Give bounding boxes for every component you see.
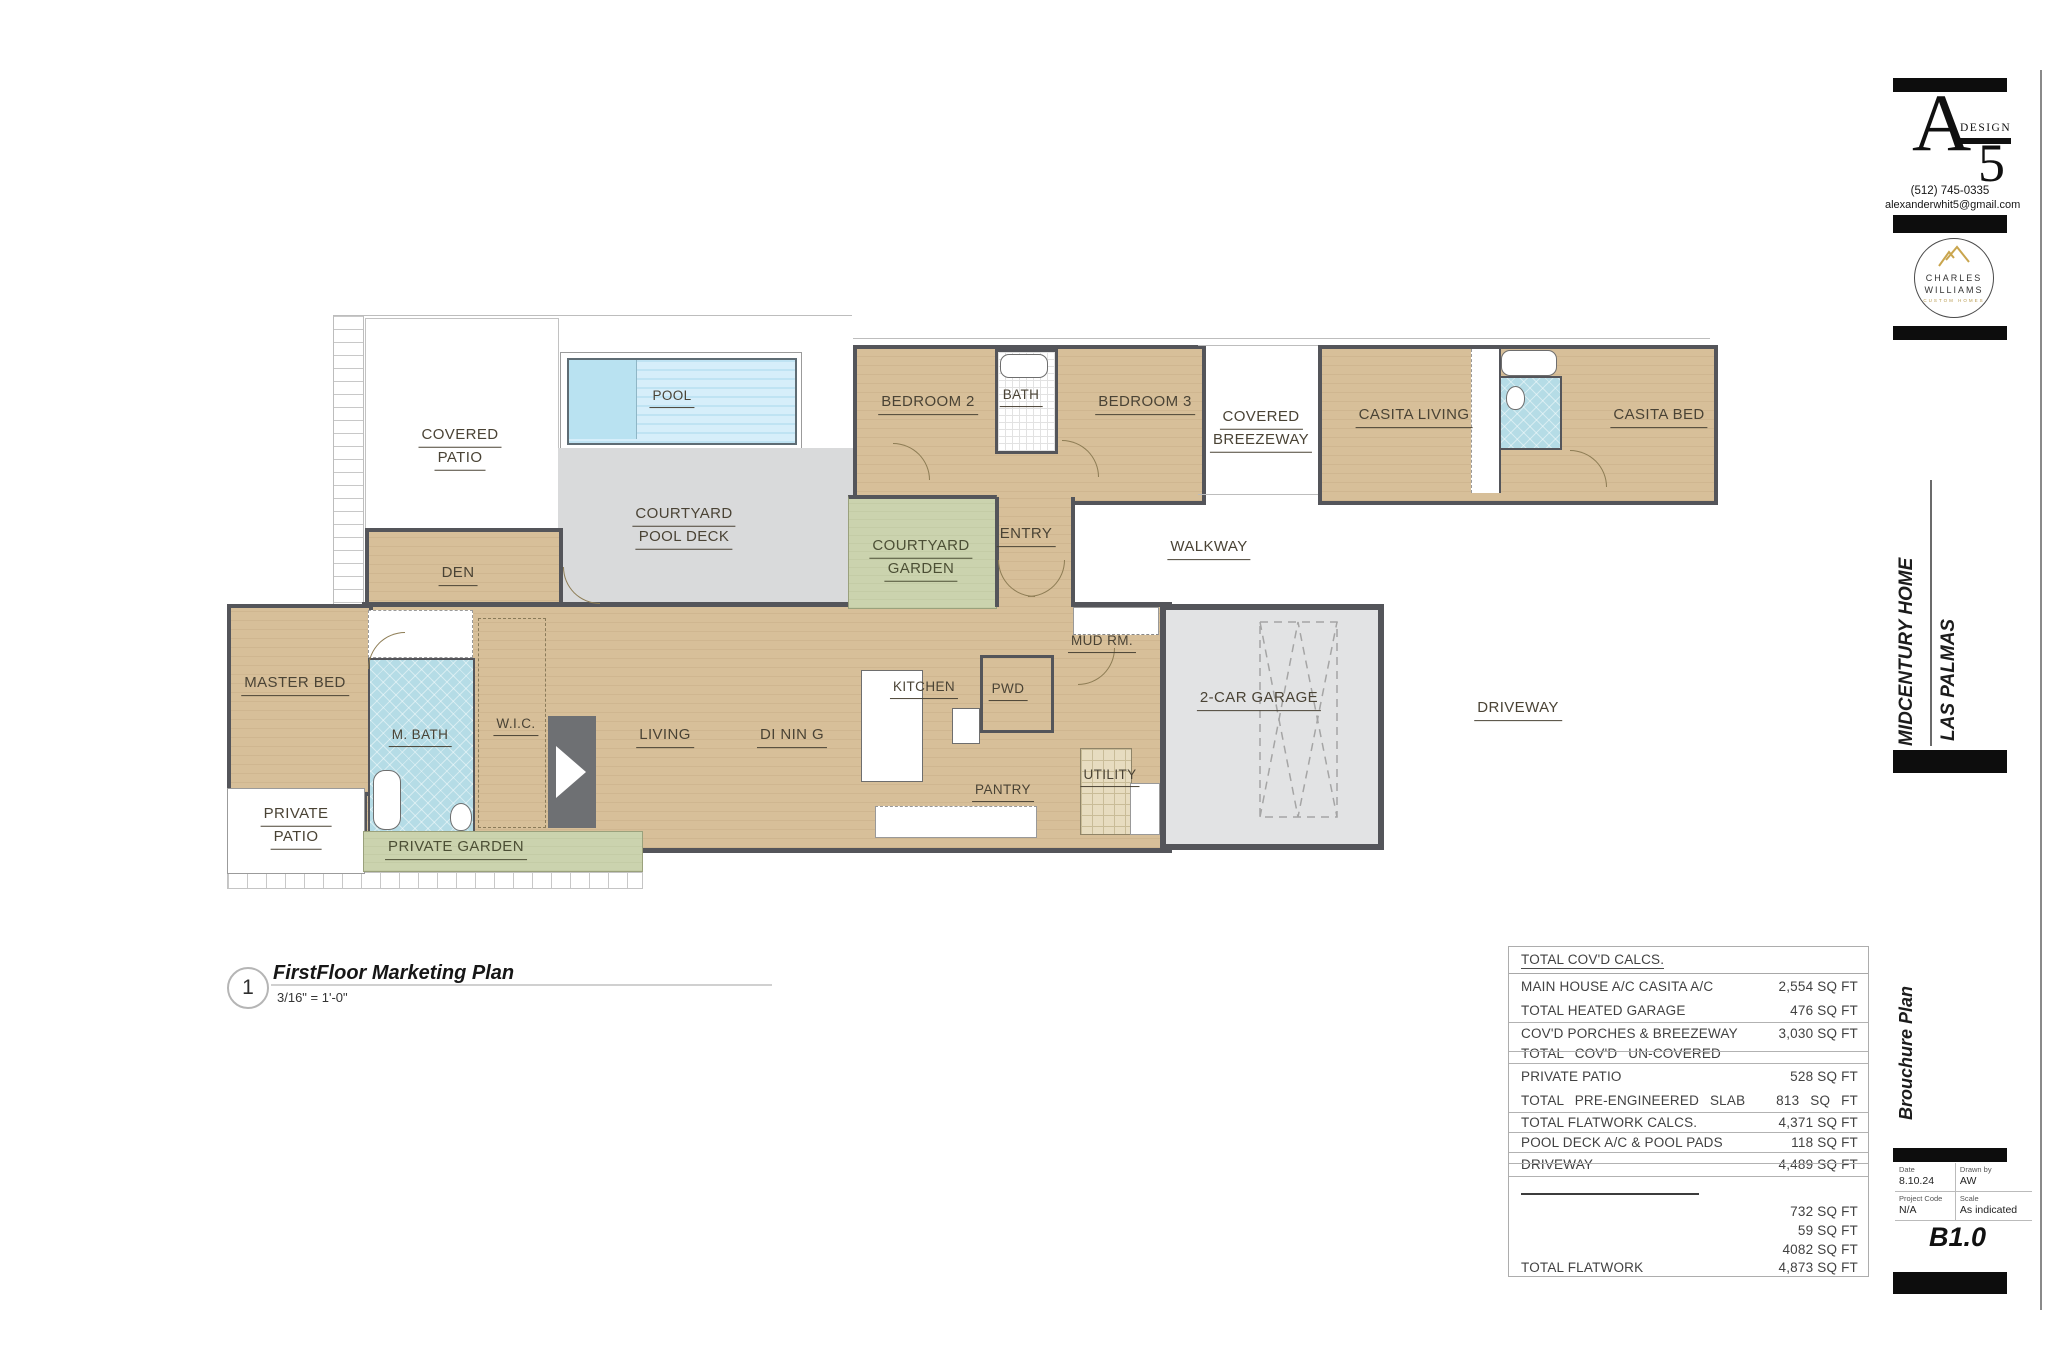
- breezeway-top-line: [1198, 345, 1318, 346]
- range-icon: [952, 708, 980, 744]
- utility-closet: [1130, 783, 1160, 835]
- room-label-pool: POOL: [649, 387, 694, 409]
- utility-floor-tile: [1080, 748, 1132, 835]
- room-label-bedroom3: BEDROOM 3: [1095, 392, 1195, 416]
- coverage-calc-table: TOTAL COV'D CALCS. MAIN HOUSE A/C CASITA…: [1508, 946, 1869, 1277]
- room-label-courtyard-garden: COURTYARDGARDEN: [869, 536, 972, 583]
- room-label-den: DEN: [439, 563, 478, 587]
- toilet-icon: [450, 803, 472, 831]
- roof-outline-top-left: [333, 315, 852, 316]
- table-row: COV'D PORCHES & BREEZEWAY3,030 SQ FT: [1509, 1023, 1868, 1043]
- table-row: 732 SQ FT: [1509, 1201, 1868, 1221]
- mud-bench: [1073, 607, 1159, 635]
- bathtub-icon: [373, 770, 401, 830]
- plan-callout-number: 1: [227, 967, 269, 1009]
- table-row: MAIN HOUSE A/C CASITA A/C2,554 SQ FT: [1509, 974, 1868, 998]
- room-label-driveway: DRIVEWAY: [1474, 698, 1562, 722]
- room-label-covered-breezeway: COVEREDBREEZEWAY: [1210, 407, 1312, 454]
- charles-williams-logo: CHARLES WILLIAMS CUSTOM HOMES: [1914, 238, 1994, 318]
- table-row: TOTAL HEATED GARAGE476 SQ FT: [1509, 998, 1868, 1023]
- titleblock-bar: [1893, 1148, 2007, 1162]
- drawn-by-cell: Drawn byAW: [1955, 1163, 2032, 1192]
- room-label-courtyard-pool-deck: COURTYARDPOOL DECK: [632, 504, 735, 551]
- sheet-number: B1.0: [1895, 1222, 2020, 1253]
- fireplace-block: [548, 716, 596, 828]
- sheet-name: Brouchure Plan: [1896, 980, 1917, 1125]
- email-address: alexanderwhit5@gmail.com: [1885, 199, 2015, 211]
- room-label-private-garden: PRIVATE GARDEN: [385, 837, 527, 861]
- room-label-casita-living: CASITA LIVING: [1356, 405, 1473, 429]
- table-row: DRIVEWAY4,489 SQ FT: [1509, 1153, 1868, 1177]
- builder-name-line2: WILLIAMS: [1915, 284, 1993, 296]
- room-label-entry: ENTRY: [997, 524, 1056, 548]
- room-casita-bath: [1498, 376, 1562, 450]
- room-label-utility: UTILITY: [1080, 766, 1139, 788]
- plan-title-rule: [271, 984, 772, 986]
- project-location: LAS PALMAS: [1938, 610, 1960, 750]
- room-label-private-patio: PRIVATEPATIO: [261, 804, 332, 851]
- titleblock-bar: [1893, 215, 2007, 233]
- plan-title: FirstFloor Marketing Plan: [273, 962, 514, 985]
- titleblock-divider: [1930, 480, 1932, 746]
- room-label-dining: DI NIN G: [757, 725, 827, 749]
- room-label-garage: 2-CAR GARAGE: [1197, 688, 1321, 712]
- logo-number-five: 5: [1978, 136, 2005, 190]
- deck-hatch-strip-bottom: [227, 872, 643, 889]
- deck-hatch-strip: [333, 315, 364, 605]
- table-row: PRIVATE PATIO528 SQ FT: [1509, 1064, 1868, 1088]
- room-label-m-bath: M. BATH: [389, 726, 452, 748]
- table-subtotal-rule: [1509, 1177, 1868, 1201]
- builder-name-line3: CUSTOM HOMES: [1915, 298, 1993, 303]
- room-master-bed: [227, 604, 373, 796]
- table-row: 59 SQ FT: [1509, 1221, 1868, 1240]
- garage-door-swing-pattern: [1166, 610, 1366, 832]
- casita-tub-icon: [1501, 350, 1557, 376]
- room-label-wic: W.I.C.: [493, 715, 538, 737]
- house-icon: [1936, 245, 1972, 267]
- calc-table-header: TOTAL COV'D CALCS.: [1509, 947, 1868, 974]
- table-row: 4082 SQ FT: [1509, 1240, 1868, 1258]
- room-label-pantry: PANTRY: [972, 781, 1034, 803]
- table-row: TOTAL FLATWORK4,873 SQ FT: [1509, 1258, 1868, 1276]
- phone-number: (512) 745-0335: [1885, 185, 2015, 197]
- scale-cell: ScaleAs indicated: [1955, 1192, 2032, 1221]
- room-label-living: LIVING: [636, 725, 694, 749]
- project-name: MIDCENTURY HOME: [1896, 556, 1918, 748]
- titleblock-bar: [1893, 326, 2007, 340]
- room-label-pwd: PWD: [989, 680, 1028, 702]
- roof-outline-top-right: [853, 338, 1710, 339]
- titleblock-bar: [1893, 750, 2007, 773]
- table-row: POOL DECK A/C & POOL PADS118 SQ FT: [1509, 1133, 1868, 1153]
- titleblock-bar: [1893, 1272, 2007, 1294]
- hall-bath-tub-icon: [1000, 354, 1048, 378]
- room-label-casita-bed: CASITA BED: [1610, 405, 1707, 429]
- drawing-sheet: COVEREDPATIO POOL COURTYARDPOOL DECK DEN…: [0, 0, 2048, 1365]
- titleblock-info-grid: Date8.10.24 Drawn byAW Project CodeN/A S…: [1895, 1163, 2032, 1221]
- breezeway-bottom-line: [1198, 494, 1318, 495]
- casita-toilet-icon: [1506, 386, 1525, 410]
- room-label-master-bed: MASTER BED: [241, 673, 349, 697]
- room-label-kitchen: KITCHEN: [890, 678, 958, 700]
- date-cell: Date8.10.24: [1895, 1163, 1955, 1192]
- room-label-bedroom2: BEDROOM 2: [878, 392, 978, 416]
- casita-closet: [1471, 349, 1501, 493]
- builder-name-line1: CHARLES: [1915, 272, 1993, 284]
- sheet-right-border: [2040, 70, 2042, 1310]
- room-label-bath: BATH: [1000, 386, 1043, 408]
- pool-shallow-section: [569, 360, 637, 439]
- room-label-mud-rm: MUD RM.: [1068, 632, 1136, 654]
- room-label-covered-patio: COVEREDPATIO: [419, 425, 502, 472]
- project-code-cell: Project CodeN/A: [1895, 1192, 1955, 1221]
- table-row: TOTAL FLATWORK CALCS.4,371 SQ FT: [1509, 1113, 1868, 1133]
- a5-design-logo: A DESIGN 5: [1908, 92, 2020, 182]
- room-label-walkway: WALKWAY: [1167, 537, 1250, 561]
- fireplace-opening-icon: [556, 746, 586, 798]
- plan-number: 1: [242, 976, 254, 1000]
- table-row: TOTAL COV'D UN-COVERED: [1509, 1043, 1868, 1064]
- table-row: TOTAL PRE-ENGINEERED SLAB813 SQ FT: [1509, 1088, 1868, 1113]
- plan-scale: 3/16" = 1'-0": [277, 990, 348, 1005]
- kitchen-counter: [875, 806, 1037, 838]
